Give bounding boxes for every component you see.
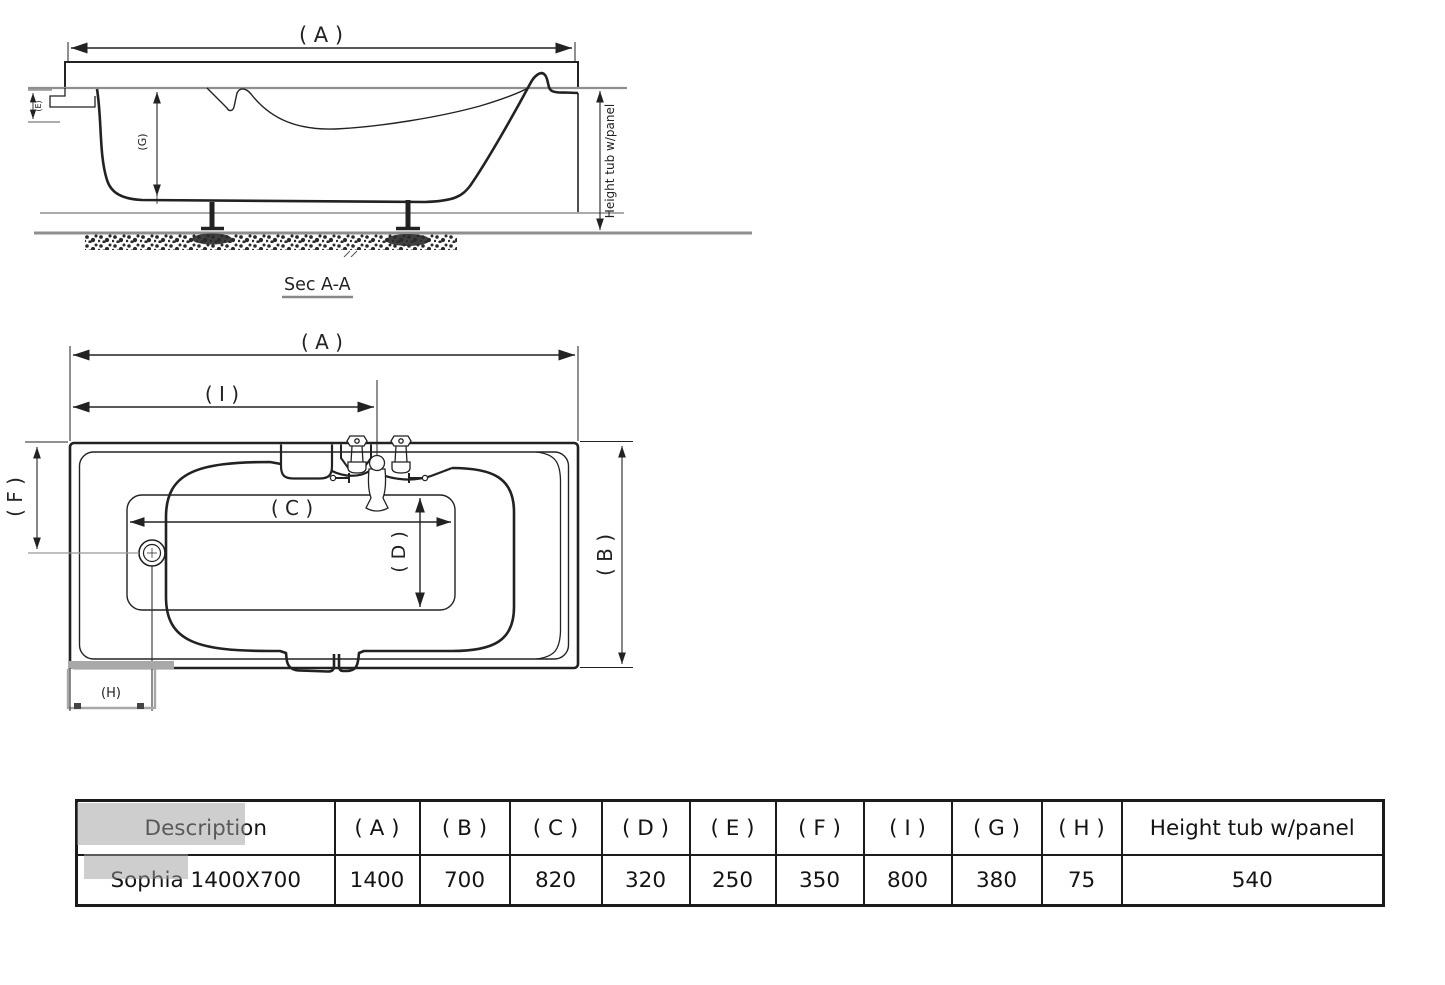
tub-rim-double-line xyxy=(536,452,561,659)
section-title: Sec A-A xyxy=(284,275,351,295)
drain-crosshair xyxy=(147,548,157,558)
cell-c: 820 xyxy=(510,855,602,906)
basin-rim xyxy=(166,462,514,672)
cell-e: 250 xyxy=(690,855,776,906)
tub-rim-rectangle xyxy=(65,62,578,88)
header-h: ( H ) xyxy=(1042,801,1122,856)
header-c: ( C ) xyxy=(510,801,602,856)
header-b: ( B ) xyxy=(420,801,510,856)
cell-b: 700 xyxy=(420,855,510,906)
h-dim-tick xyxy=(137,703,144,709)
header-e: ( E ) xyxy=(690,801,776,856)
table-data-row: Sophia 1400X700 1400 700 820 320 250 350… xyxy=(77,855,1384,906)
deck-pocket xyxy=(281,445,332,479)
section-dim-label-g: (G) xyxy=(136,133,149,150)
cell-d: 320 xyxy=(602,855,690,906)
spec-table: Description ( A ) ( B ) ( C ) ( D ) ( E … xyxy=(75,799,1385,907)
cell-g: 380 xyxy=(952,855,1042,906)
header-f: ( F ) xyxy=(776,801,864,856)
cell-h: 75 xyxy=(1042,855,1122,906)
header-a: ( A ) xyxy=(335,801,420,856)
cell-a: 1400 xyxy=(335,855,420,906)
header-height-tub: Height tub w/panel xyxy=(1122,801,1384,856)
section-dim-label-a: ( A ) xyxy=(299,23,343,47)
cell-f: 350 xyxy=(776,855,864,906)
plan-dim-label-i: ( I ) xyxy=(205,382,239,406)
cell-description: Sophia 1400X700 xyxy=(77,855,335,906)
plan-view-drawing: ( A ) ( I ) ( C ) ( D ) ( F ) ( B ) (H) xyxy=(0,320,700,720)
tub-rim-inner-line xyxy=(80,452,569,659)
h-dim-grey-bar xyxy=(68,661,174,669)
faucet-icon xyxy=(330,436,427,511)
cell-i: 800 xyxy=(864,855,952,906)
leg-shadow xyxy=(192,234,232,245)
header-d: ( D ) xyxy=(602,801,690,856)
h-dim-tick xyxy=(74,703,81,709)
plan-dim-label-f: ( F ) xyxy=(3,477,27,517)
tub-profile xyxy=(97,73,578,202)
header-g: ( G ) xyxy=(952,801,1042,856)
spec-table-container: Description ( A ) ( B ) ( C ) ( D ) ( E … xyxy=(75,799,1382,907)
plan-dim-label-d: ( D ) xyxy=(388,531,410,573)
tub-outer-edge xyxy=(70,443,578,668)
header-i: ( I ) xyxy=(864,801,952,856)
plan-dim-label-a: ( A ) xyxy=(301,330,343,354)
section-dim-label-height: Height tub w/panel xyxy=(603,104,617,218)
hatch-end-mark xyxy=(344,251,357,257)
plan-dim-label-b: ( B ) xyxy=(593,534,617,576)
section-dim-label-e: (E) xyxy=(34,100,43,111)
section-view-drawing: ( A ) (E) (G) Height tub w/panel Sec A-A xyxy=(0,0,760,310)
left-lip-detail xyxy=(50,88,95,107)
header-description: Description xyxy=(77,801,335,856)
plan-dim-label-h: (H) xyxy=(101,686,121,701)
bathtub-spec-sheet: { "section_view": { "title": "Sec A-A", … xyxy=(0,0,1445,985)
plan-dim-label-c: ( C ) xyxy=(271,496,313,520)
leg-shadow xyxy=(386,234,430,246)
table-header-row: Description ( A ) ( B ) ( C ) ( D ) ( E … xyxy=(77,801,1384,856)
cell-height-tub: 540 xyxy=(1122,855,1384,906)
tub-inner-contour xyxy=(207,88,528,129)
